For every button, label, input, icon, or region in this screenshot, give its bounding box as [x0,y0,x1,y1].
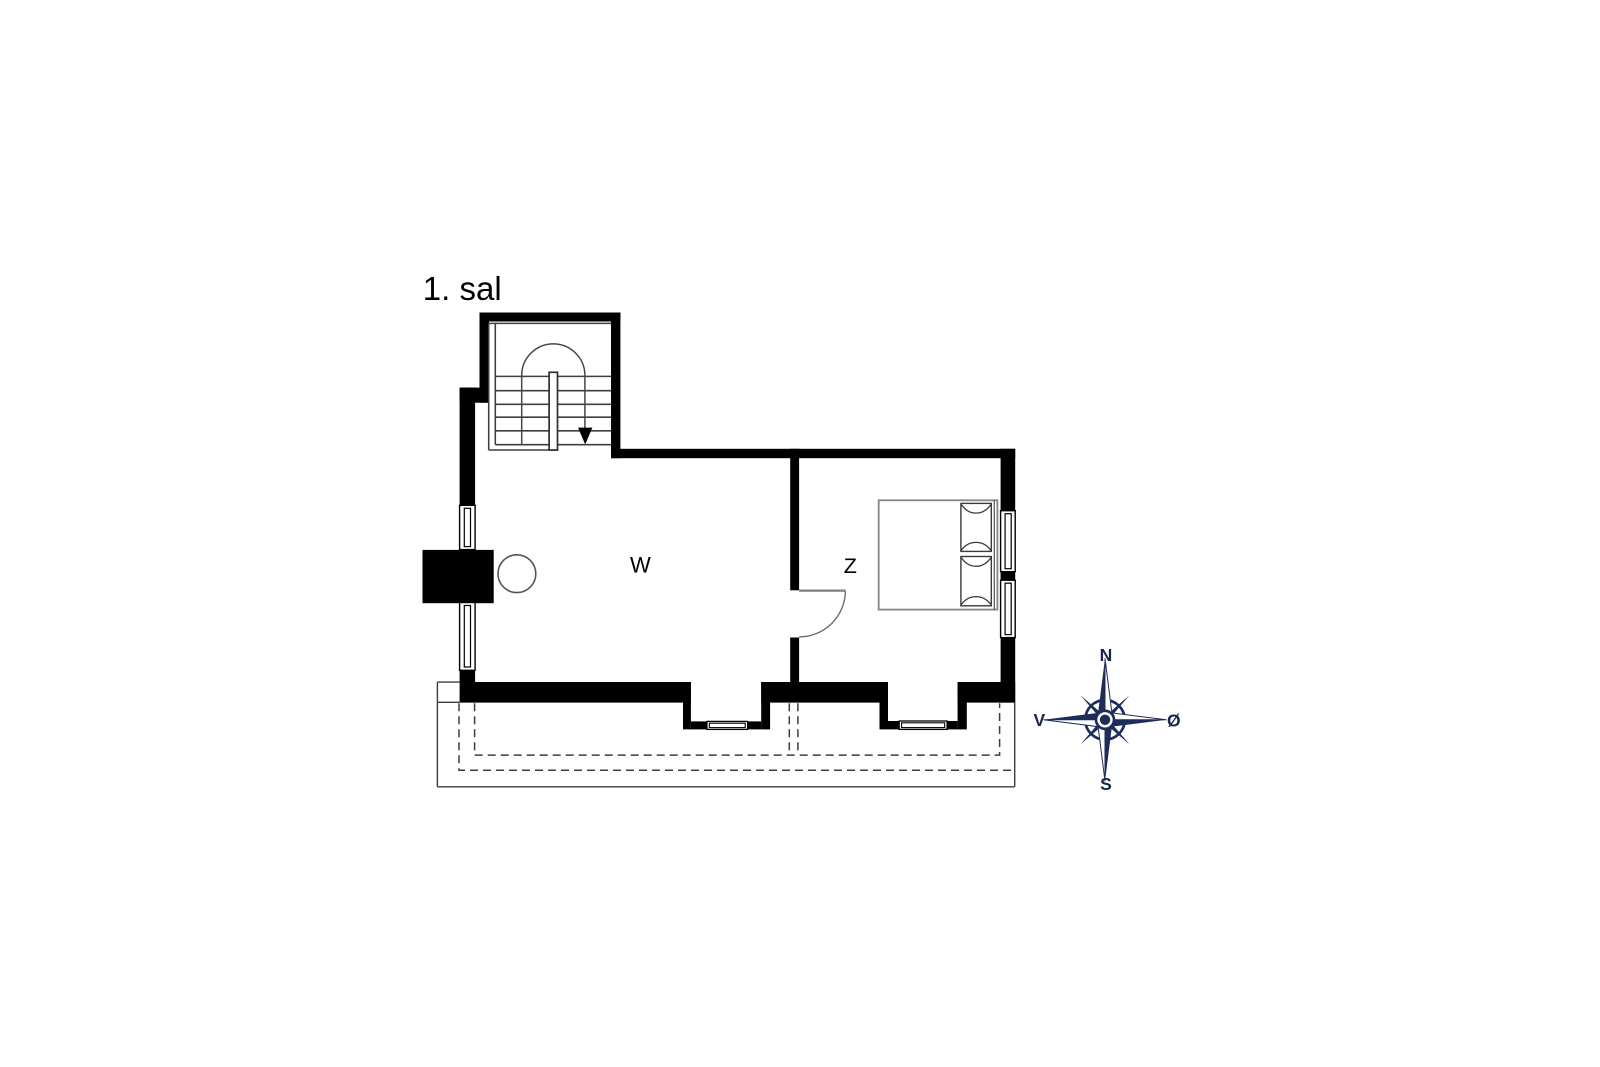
svg-text:Ø: Ø [1167,711,1181,731]
svg-text:Z: Z [844,554,857,578]
svg-text:N: N [1100,645,1113,665]
svg-text:S: S [1100,774,1112,794]
svg-text:1. sal: 1. sal [423,270,502,307]
svg-text:W: W [630,552,651,577]
svg-text:V: V [1034,710,1046,730]
